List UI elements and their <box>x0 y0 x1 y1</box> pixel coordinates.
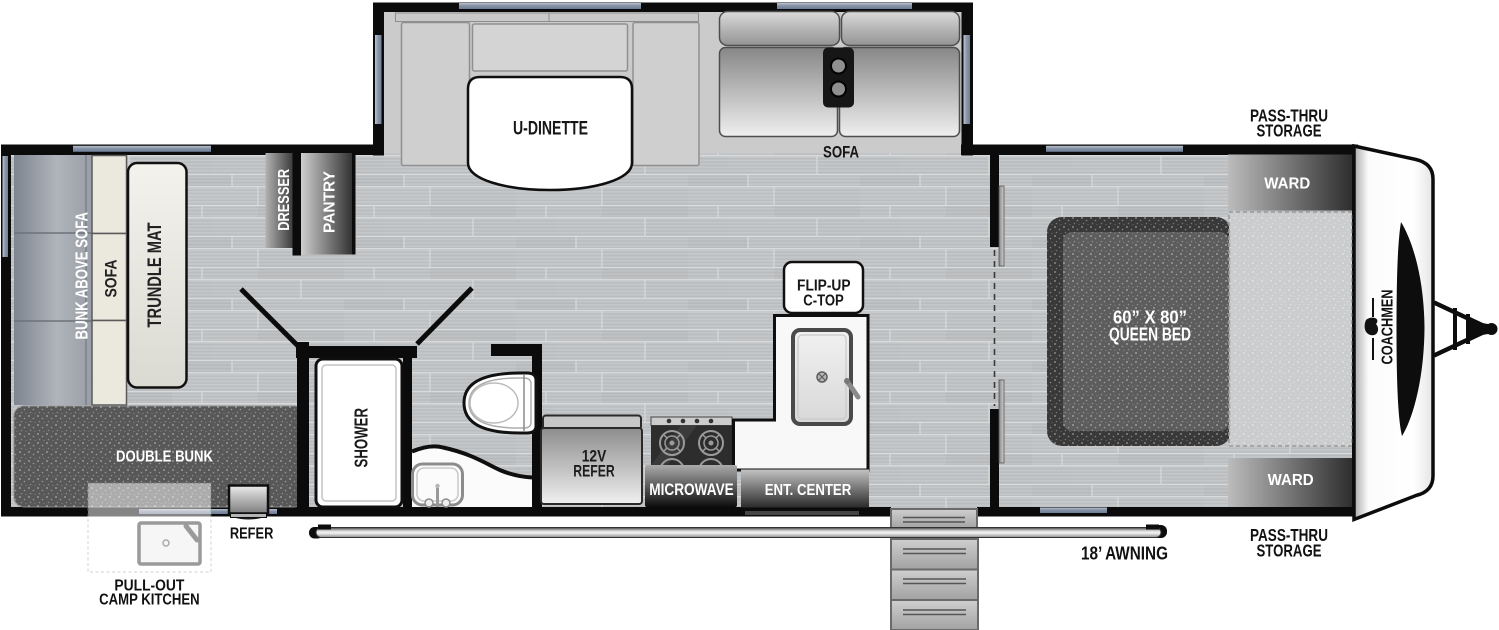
svg-text:REFER: REFER <box>573 462 615 481</box>
svg-text:QUEEN BED: QUEEN BED <box>1109 324 1191 345</box>
svg-text:DRESSER: DRESSER <box>276 169 293 231</box>
svg-text:18’ AWNING: 18’ AWNING <box>1081 544 1168 564</box>
svg-text:TRUNDLE MAT: TRUNDLE MAT <box>145 222 166 327</box>
svg-text:DOUBLE BUNK: DOUBLE BUNK <box>116 449 214 466</box>
svg-text:REFER: REFER <box>230 526 274 543</box>
svg-text:MICROWAVE: MICROWAVE <box>649 480 734 499</box>
svg-text:SHOWER: SHOWER <box>352 408 372 468</box>
svg-text:STORAGE: STORAGE <box>1257 541 1322 561</box>
svg-text:C-TOP: C-TOP <box>803 293 844 310</box>
svg-text:PANTRY: PANTRY <box>322 170 339 233</box>
svg-text:WARD: WARD <box>1264 176 1310 193</box>
svg-text:ENT. CENTER: ENT. CENTER <box>765 482 852 499</box>
svg-text:COACHMEN: COACHMEN <box>1380 290 1397 365</box>
svg-text:SOFA: SOFA <box>102 260 121 298</box>
svg-text:SOFA: SOFA <box>823 144 859 162</box>
svg-text:CAMP KITCHEN: CAMP KITCHEN <box>99 592 200 609</box>
svg-text:STORAGE: STORAGE <box>1257 121 1322 141</box>
svg-text:BUNK ABOVE SOFA: BUNK ABOVE SOFA <box>72 212 92 340</box>
svg-text:U-DINETTE: U-DINETTE <box>513 119 588 140</box>
svg-text:WARD: WARD <box>1268 472 1314 489</box>
